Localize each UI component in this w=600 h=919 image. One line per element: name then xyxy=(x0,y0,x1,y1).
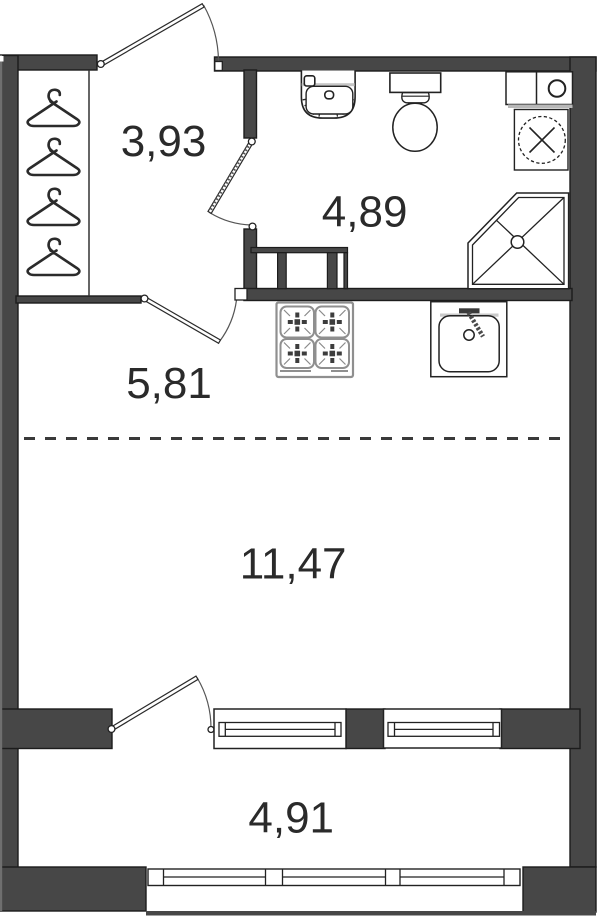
svg-text:3,93: 3,93 xyxy=(121,117,207,166)
svg-text:4,89: 4,89 xyxy=(322,188,408,237)
svg-text:5,81: 5,81 xyxy=(126,359,212,408)
svg-text:11,47: 11,47 xyxy=(240,540,347,589)
svg-text:4,91: 4,91 xyxy=(248,794,334,843)
